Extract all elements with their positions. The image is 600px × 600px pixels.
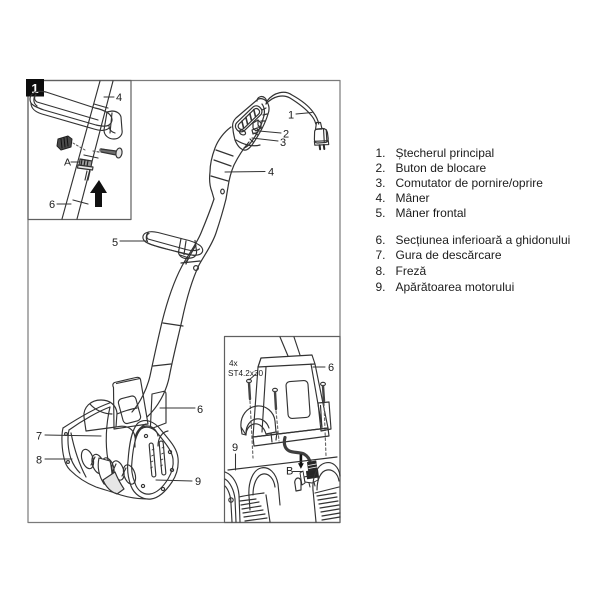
svg-text:7: 7 xyxy=(36,431,42,443)
svg-text:6: 6 xyxy=(49,199,55,211)
svg-text:9: 9 xyxy=(195,476,201,488)
svg-text:B: B xyxy=(286,466,293,478)
svg-text:6: 6 xyxy=(328,362,334,374)
svg-text:4: 4 xyxy=(116,92,122,104)
svg-text:5: 5 xyxy=(112,237,118,249)
svg-text:1: 1 xyxy=(288,110,294,122)
svg-text:8: 8 xyxy=(36,455,42,467)
svg-text:A: A xyxy=(64,157,71,169)
svg-text:9: 9 xyxy=(232,442,238,454)
svg-text:ST4.2x30: ST4.2x30 xyxy=(228,369,263,378)
svg-text:4x: 4x xyxy=(229,359,238,368)
svg-text:6: 6 xyxy=(197,404,203,416)
svg-text:3: 3 xyxy=(280,137,286,149)
svg-text:4: 4 xyxy=(268,167,274,179)
